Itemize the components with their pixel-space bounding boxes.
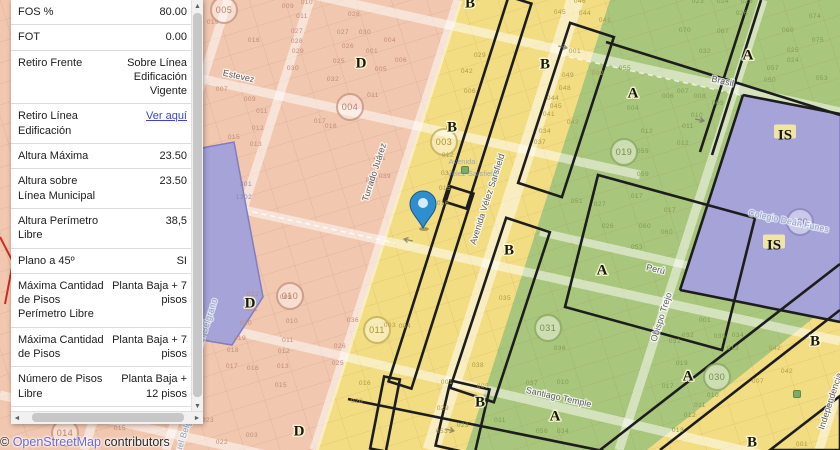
parcel-number: 011 xyxy=(296,13,308,20)
parcel-number: 011 xyxy=(256,108,268,115)
parcel-number: 1302 xyxy=(236,194,252,201)
parcel-number: 044 xyxy=(547,95,559,102)
attribute-value: Sobre Línea Edificación Vigente xyxy=(110,56,187,99)
parcel-number: 032 xyxy=(699,48,711,55)
block-number-circle: 030 xyxy=(704,364,730,390)
parcel-number: 042 xyxy=(781,368,793,375)
parcel-number: 055 xyxy=(619,65,631,72)
parcel-number: 025 xyxy=(741,0,753,5)
parcel-number: 011 xyxy=(694,402,706,409)
attribute-row-altura-per-metro-libre: Altura Perímetro Libre38,5 xyxy=(11,209,192,249)
attribute-row-altura-sobre-l-nea-municipal: Altura sobre Línea Municipal23.50 xyxy=(11,169,192,209)
zone-letter-is: IS xyxy=(778,128,792,144)
parcel-number: 006 xyxy=(395,57,407,64)
parcel-number: 034 xyxy=(732,332,744,339)
parcel-number: 013 xyxy=(672,427,684,434)
zone-letter-b: B xyxy=(810,334,820,350)
parcel-number: 026 xyxy=(334,343,346,350)
parcel-number: 017 xyxy=(631,193,643,200)
parcel-number: 012 xyxy=(684,412,696,419)
attribute-row-m-xima-cantidad-de-pisos: Máxima Cantidad de PisosPlanta Baja + 7 … xyxy=(11,328,192,368)
zoning-map-application: 0050040100140110030190310300200100090110… xyxy=(0,0,840,450)
parcel-number: 026 xyxy=(342,43,354,50)
parcel-number: 060 xyxy=(639,223,651,230)
horizontal-scroll-track[interactable] xyxy=(23,412,191,424)
parcel-number: 027 xyxy=(291,28,303,35)
block-number-circle: 019 xyxy=(611,139,637,165)
attribute-value: SI xyxy=(110,254,187,268)
parcel-number: 027 xyxy=(594,201,606,208)
parcel-number: 059 xyxy=(637,148,649,155)
parcel-number: 018 xyxy=(325,123,337,130)
parcel-number: 025 xyxy=(787,47,799,54)
scroll-up-button[interactable]: ▲ xyxy=(192,0,203,12)
parcel-number: 039 xyxy=(379,173,391,180)
attribute-label: Retiro Frente xyxy=(18,56,104,99)
attribute-row-m-xima-cantidad-de-pisos-per-metro-libre: Máxima Cantidad de Pisos Perímetro Libre… xyxy=(11,274,192,328)
parcel-number: 060 xyxy=(782,27,794,34)
parcel-number: 032 xyxy=(682,332,694,339)
marker-center-dot xyxy=(418,198,428,208)
attribute-row-n-mero-de-pisos-libre: Número de Pisos LibrePlanta Baja + 12 pi… xyxy=(11,367,192,407)
parcel-number: 015 xyxy=(439,185,451,192)
attribute-value: 23.50 xyxy=(110,149,187,163)
parcel-number: 044 xyxy=(579,10,591,17)
parcel-number: 026 xyxy=(736,10,748,17)
parcel-number: 053 xyxy=(436,428,448,435)
parcel-number: 001 xyxy=(796,441,808,448)
parcel-number: 060 xyxy=(661,229,673,236)
parcel-number: 070 xyxy=(679,27,691,34)
parcel-number: 010 xyxy=(691,112,703,119)
attribute-value: 38,5 xyxy=(110,214,187,243)
parcel-number: 005 xyxy=(375,66,387,73)
parcel-number: 011 xyxy=(682,123,694,130)
parcel-number: 057 xyxy=(767,65,779,72)
parcel-number: 016 xyxy=(248,37,260,44)
parcel-number: 013 xyxy=(250,141,262,148)
parcel-number: 045 xyxy=(554,9,566,16)
parcel-number: 035 xyxy=(499,295,511,302)
attribute-label: Plano a 45º xyxy=(18,254,104,268)
poi-marker-icon xyxy=(794,391,801,398)
parcel-number: 042 xyxy=(461,68,473,75)
parcel-number: 008 xyxy=(694,93,706,100)
parcel-number: 030 xyxy=(287,65,299,72)
zone-letter-b: B xyxy=(475,395,485,411)
parcel-number: 023 xyxy=(457,422,469,429)
parcel-number: 003 xyxy=(384,322,396,329)
zone-letter-d: D xyxy=(294,424,305,440)
parcel-number: 009 xyxy=(282,3,294,10)
parcel-number: 041 xyxy=(599,17,611,24)
parcel-number: 048 xyxy=(559,85,571,92)
parcel-number: 015 xyxy=(114,425,126,432)
attribute-label: Retiro Línea Edificación xyxy=(18,109,104,138)
parcel-number: 017 xyxy=(226,363,238,370)
parcel-number: 010 xyxy=(286,318,298,325)
parcel-number: 001 xyxy=(699,317,711,324)
parcel-number: 029 xyxy=(437,405,449,412)
parcel-number: 023 xyxy=(692,0,704,5)
attribute-label: Máxima Cantidad de Pisos xyxy=(18,333,104,362)
parcel-number: 034 xyxy=(539,128,551,135)
block-number: 003 xyxy=(436,137,453,147)
panel-vertical-scrollbar[interactable]: ▲ ▼ xyxy=(191,0,203,412)
parcel-number: 074 xyxy=(809,13,821,20)
parcel-number: 049 xyxy=(562,72,574,79)
parcel-number: 059 xyxy=(637,171,649,178)
parcel-number: 046 xyxy=(574,0,586,5)
parcel-number: 018 xyxy=(227,347,239,354)
attribute-row-plano-a-45: Plano a 45ºSI xyxy=(11,249,192,274)
zone-letter-a: A xyxy=(628,86,639,102)
parcel-number: 037 xyxy=(534,139,546,146)
parcel-number: 010 xyxy=(557,379,569,386)
map-attribution: © OpenStreetMap contributors xyxy=(0,435,170,449)
parcel-number: 019 xyxy=(234,335,246,342)
area-name-label: Vélez Sarsfield xyxy=(447,169,497,178)
zone-letter-a: A xyxy=(550,409,561,425)
parcel-number: 016 xyxy=(247,365,259,372)
zone-letter-is: IS xyxy=(767,238,781,254)
block-number: 031 xyxy=(540,323,557,333)
block-number-circle: 011 xyxy=(364,317,390,343)
parcel-number: 024 xyxy=(787,57,799,64)
parcel-number: 028 xyxy=(348,11,360,18)
ver-aqui-link[interactable]: Ver aquí xyxy=(146,110,187,122)
zone-letter-a: A xyxy=(683,369,694,385)
parcel-number: 007 xyxy=(752,378,764,385)
vertical-scroll-thumb[interactable] xyxy=(193,13,202,397)
parcel-number: 042 xyxy=(769,345,781,352)
openstreetmap-link[interactable]: OpenStreetMap xyxy=(13,435,101,449)
parcel-number: 056 xyxy=(536,428,548,435)
block-number-circle: 031 xyxy=(535,315,561,341)
attribute-value: Ver aquí xyxy=(110,109,187,138)
attribute-row-fos: FOS %80.00 xyxy=(11,0,192,25)
attribute-row-fot: FOT0.00 xyxy=(11,25,192,50)
zone-letter-d: D xyxy=(245,296,256,312)
parcel-number: 001 xyxy=(441,379,453,386)
attribute-row-retiro-frente: Retiro FrenteSobre Línea Edificación Vig… xyxy=(11,51,192,105)
parcel-number: 301 xyxy=(240,181,252,188)
parcel-number: 006 xyxy=(662,93,674,100)
block-number-circle: 004 xyxy=(337,94,363,120)
parcel-number: 005 xyxy=(477,383,489,390)
parcel-number: 053 xyxy=(631,244,643,251)
parcel-number: 012 xyxy=(278,348,290,355)
parcel-number: 009 xyxy=(244,96,256,103)
scroll-left-button[interactable]: ◄ xyxy=(11,412,23,424)
parcel-number: 011 xyxy=(494,417,506,424)
parcel-number: 016 xyxy=(359,380,371,387)
parcel-number: 004 xyxy=(399,323,411,330)
block-number: 011 xyxy=(369,325,385,335)
parcel-number: 017 xyxy=(664,207,676,214)
block-number: 004 xyxy=(342,102,359,112)
scroll-right-button[interactable]: ► xyxy=(191,412,203,424)
zone-letter-a: A xyxy=(743,48,754,64)
parcel-number: 001 xyxy=(569,48,581,55)
parcel-number: 012 xyxy=(677,140,689,147)
horizontal-scroll-thumb[interactable] xyxy=(32,413,184,422)
zone-letter-a: A xyxy=(597,263,608,279)
parcel-number: 019 xyxy=(676,360,688,367)
attribute-label: Altura sobre Línea Municipal xyxy=(18,174,104,203)
attribute-value: 23.50 xyxy=(110,174,187,203)
parcel-number: 036 xyxy=(347,317,359,324)
attribute-label: Máxima Cantidad de Pisos Perímetro Libre xyxy=(18,279,104,322)
parcel-number: 025 xyxy=(332,360,344,367)
attribute-row-retiro-l-nea-edificaci-n: Retiro Línea EdificaciónVer aquí xyxy=(11,104,192,144)
parcel-number: 026 xyxy=(602,223,614,230)
panel-horizontal-scrollbar[interactable]: ◄ ► xyxy=(11,411,203,424)
parcel-number: 043 xyxy=(567,119,579,126)
parcel-number: 041 xyxy=(543,111,555,118)
parcel-number: 019 xyxy=(207,19,219,26)
parcel-number: 050 xyxy=(764,77,776,84)
parcel-number: 011 xyxy=(367,92,379,99)
parcel-number: 045 xyxy=(550,103,562,110)
parcel-number: 009 xyxy=(712,100,724,107)
parcel-number: 007 xyxy=(216,86,228,93)
attribute-label: Altura Máxima xyxy=(18,149,104,163)
parcel-number: 003 xyxy=(246,432,258,439)
block-number: 019 xyxy=(616,147,633,157)
parcel-number: 025 xyxy=(333,58,345,65)
parcel-number: 031 xyxy=(669,338,681,345)
zone-letter-b: B xyxy=(447,120,457,136)
attribute-label: FOS % xyxy=(18,5,104,19)
parcel-number: 022 xyxy=(216,439,228,446)
parcel-number: 051 xyxy=(571,198,583,205)
parcel-number: 013 xyxy=(727,345,739,352)
attribute-label: Número de Pisos Libre xyxy=(18,372,104,401)
parcel-number: 011 xyxy=(282,337,294,344)
copyright-symbol: © xyxy=(0,435,13,449)
parcel-number: 010 xyxy=(301,0,313,6)
parcel-number: 012 xyxy=(641,128,653,135)
zone-letter-b: B xyxy=(465,0,475,12)
parcel-number: 024 xyxy=(717,0,729,5)
parcel-number: 020 xyxy=(351,398,363,405)
zone-letter-b: B xyxy=(540,57,550,73)
parcel-number: 015 xyxy=(228,134,240,141)
parcel-number: 053 xyxy=(816,75,828,82)
zoning-info-panel: FOS %80.00FOT0.00Retiro FrenteSobre Líne… xyxy=(11,0,203,424)
parcel-number: 004 xyxy=(627,105,639,112)
parcel-number: 029 xyxy=(292,48,304,55)
parcel-number: 034 xyxy=(557,428,569,435)
area-name-label: Avenida xyxy=(449,157,477,166)
parcel-number: 006 xyxy=(464,88,476,95)
block-number: 030 xyxy=(709,372,726,382)
parcel-number: 036 xyxy=(554,345,566,352)
parcel-number: 017 xyxy=(662,383,674,390)
parcel-number: 002 xyxy=(592,70,604,77)
parcel-number: 001 xyxy=(366,48,378,55)
parcel-number: 027 xyxy=(337,29,349,36)
attribute-value: Planta Baja + 12 pisos xyxy=(110,372,187,401)
zoning-attribute-rows: FOS %80.00FOT0.00Retiro FrenteSobre Líne… xyxy=(11,0,192,412)
zone-letter-b: B xyxy=(747,435,757,450)
parcel-number: 028 xyxy=(291,38,303,45)
zone-letter-b: B xyxy=(504,243,514,259)
parcel-number: 007 xyxy=(677,88,689,95)
parcel-number: 023 xyxy=(202,417,214,424)
block-number: 005 xyxy=(216,5,233,15)
parcel-number: 067 xyxy=(717,28,729,35)
attribute-label: FOT xyxy=(18,30,104,44)
attribute-value: 0.00 xyxy=(110,30,187,44)
parcel-number: 075 xyxy=(812,37,824,44)
attribute-value: Planta Baja + 7 pisos xyxy=(110,279,187,322)
parcel-number: 038 xyxy=(472,362,484,369)
attribute-value: 80.00 xyxy=(110,5,187,19)
zone-letter-d: D xyxy=(356,56,367,72)
parcel-number: 010 xyxy=(707,392,719,399)
attribute-label: Altura Perímetro Libre xyxy=(18,214,104,243)
attribute-value: Planta Baja + 7 pisos xyxy=(110,333,187,362)
parcel-number: 015 xyxy=(275,382,287,389)
marker-shadow xyxy=(419,227,429,231)
attribute-row-altura-m-xima: Altura Máxima23.50 xyxy=(11,144,192,169)
parcel-number: 032 xyxy=(327,76,339,83)
parcel-number: 016 xyxy=(437,200,449,207)
parcel-number: 030 xyxy=(359,29,371,36)
parcel-number: 013 xyxy=(277,363,289,370)
parcel-number: 012 xyxy=(252,125,264,132)
parcel-number: 035 xyxy=(714,333,726,340)
parcel-number: 004 xyxy=(384,37,396,44)
attribution-suffix: contributors xyxy=(101,435,170,449)
parcel-number: 020 xyxy=(240,320,252,327)
parcel-number: 009 xyxy=(280,294,292,301)
parcel-number: 029 xyxy=(474,52,486,59)
